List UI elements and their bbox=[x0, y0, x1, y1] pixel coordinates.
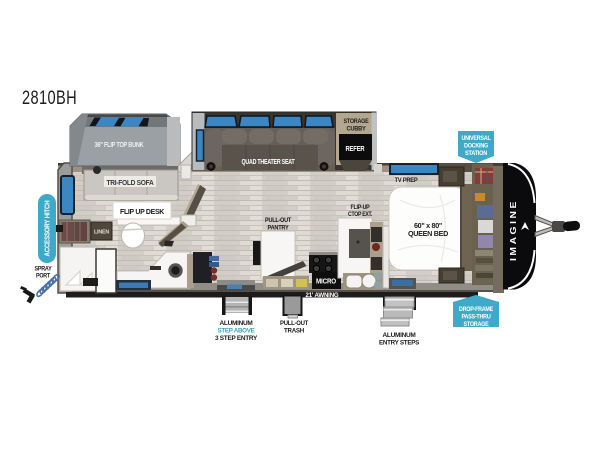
svg-text:FLIP-UP: FLIP-UP bbox=[351, 204, 371, 211]
svg-text:PORT: PORT bbox=[36, 273, 50, 280]
svg-text:PULL-OUT: PULL-OUT bbox=[265, 217, 292, 224]
svg-text:ENTRY STEPS: ENTRY STEPS bbox=[379, 340, 420, 347]
svg-text:LINEN: LINEN bbox=[94, 230, 109, 236]
svg-text:REFER: REFER bbox=[346, 146, 365, 153]
svg-text:2810BH: 2810BH bbox=[22, 88, 77, 109]
svg-text:TRASH: TRASH bbox=[284, 328, 305, 335]
svg-text:MICRO: MICRO bbox=[316, 279, 337, 286]
svg-text:IMAGINE: IMAGINE bbox=[509, 199, 518, 261]
svg-text:TV PREP: TV PREP bbox=[395, 177, 419, 184]
svg-text:PASS-THRU: PASS-THRU bbox=[462, 314, 492, 321]
svg-text:3 STEP ENTRY: 3 STEP ENTRY bbox=[215, 335, 258, 342]
svg-text:PULL-OUT: PULL-OUT bbox=[280, 320, 308, 327]
svg-text:PANTRY: PANTRY bbox=[268, 225, 290, 232]
svg-text:STATION: STATION bbox=[465, 150, 488, 157]
svg-text:STORAGE: STORAGE bbox=[344, 118, 369, 125]
svg-text:QUAD THEATER SEAT: QUAD THEATER SEAT bbox=[242, 159, 296, 166]
svg-text:DROP-FRAME: DROP-FRAME bbox=[459, 306, 494, 313]
svg-text:TRI-FOLD SOFA: TRI-FOLD SOFA bbox=[107, 180, 154, 187]
svg-text:21' AWNING: 21' AWNING bbox=[306, 292, 339, 299]
svg-text:ALUMINUM: ALUMINUM bbox=[383, 332, 417, 339]
svg-text:60" x 80": 60" x 80" bbox=[414, 223, 442, 230]
svg-text:CUBBY: CUBBY bbox=[347, 126, 367, 133]
svg-text:CTOP EXT.: CTOP EXT. bbox=[348, 211, 372, 218]
svg-text:STEP ABOVE: STEP ABOVE bbox=[218, 328, 256, 335]
svg-text:STORAGE: STORAGE bbox=[464, 321, 490, 328]
svg-text:36" FLIP TOP BUNK: 36" FLIP TOP BUNK bbox=[95, 142, 144, 149]
svg-text:SPRAY: SPRAY bbox=[35, 266, 53, 273]
svg-text:UNIVERSAL: UNIVERSAL bbox=[462, 135, 491, 142]
svg-text:FLIP UP DESK: FLIP UP DESK bbox=[120, 209, 164, 216]
svg-text:ALUMINUM: ALUMINUM bbox=[220, 320, 254, 327]
svg-text:QUEEN BED: QUEEN BED bbox=[408, 231, 448, 238]
svg-text:DOCKING: DOCKING bbox=[464, 143, 488, 150]
svg-text:ACCESSORY HITCH: ACCESSORY HITCH bbox=[43, 200, 52, 256]
